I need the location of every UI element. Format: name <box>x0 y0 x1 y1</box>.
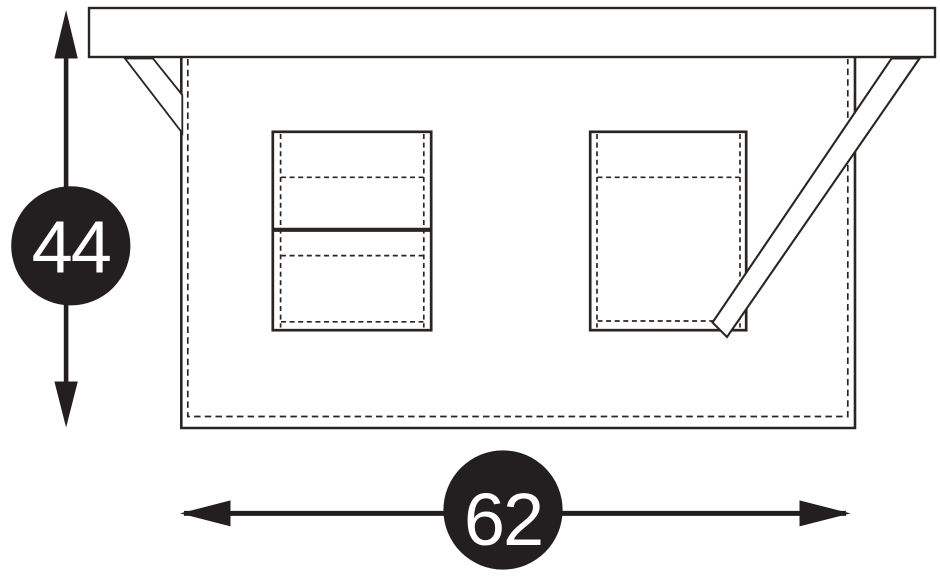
cabinet-body <box>181 58 855 429</box>
furniture-dimension-diagram: 44 62 <box>0 0 940 581</box>
width-dimension: 62 <box>180 450 851 569</box>
arrow-right-icon <box>800 500 851 526</box>
tabletop-panel <box>89 8 935 57</box>
arrow-left-icon <box>180 500 231 526</box>
height-dimension: 44 <box>11 10 130 428</box>
width-dimension-label: 62 <box>464 478 542 561</box>
diagram-page: 44 62 <box>0 0 940 581</box>
height-dimension-label: 44 <box>32 206 110 289</box>
arrow-down-icon <box>54 382 77 428</box>
cabinet-outline <box>181 58 855 429</box>
mounting-bracket-left <box>125 59 182 134</box>
arrow-up-icon <box>54 10 77 59</box>
